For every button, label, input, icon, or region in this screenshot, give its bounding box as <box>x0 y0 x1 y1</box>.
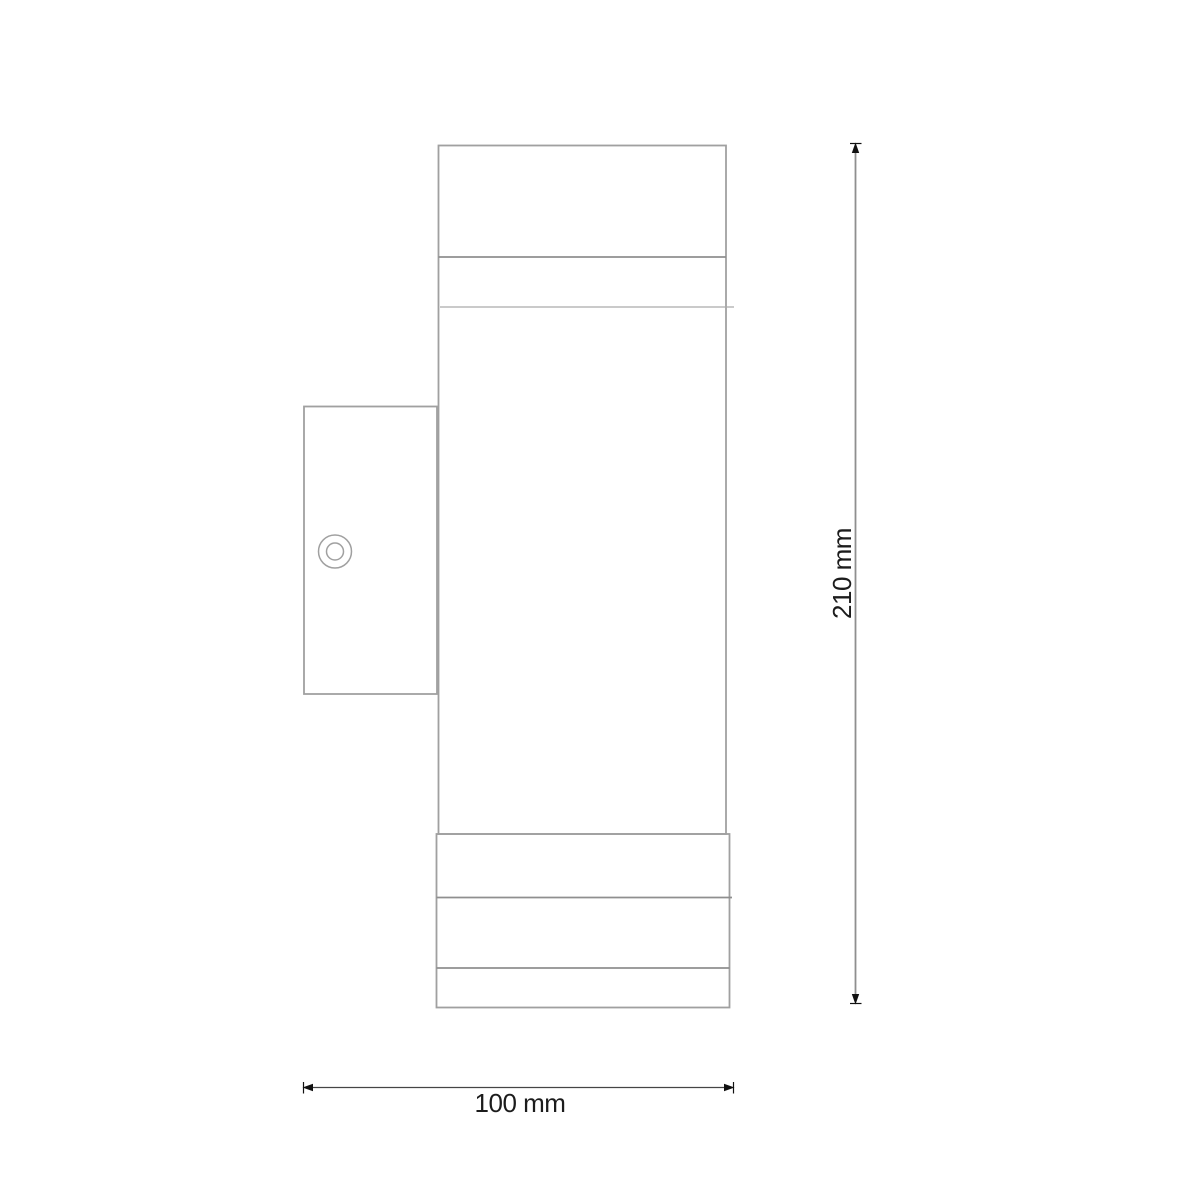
bottom-cap-outline <box>437 834 730 1008</box>
wall-mount-bracket <box>304 407 437 695</box>
height-dimension-label: 210 mm <box>827 528 857 619</box>
lamp-bottom-cap <box>437 834 733 1008</box>
lamp-body-outline <box>439 146 727 835</box>
screw-hole-inner-circle <box>327 543 344 560</box>
lamp-body <box>439 146 735 835</box>
technical-drawing-page: 210 mm 100 mm <box>0 0 1200 1200</box>
width-dimension-label: 100 mm <box>475 1088 566 1118</box>
width-dimension: 100 mm <box>303 1082 735 1118</box>
height-dimension: 210 mm <box>827 143 862 1005</box>
screw-hole-outer-circle <box>319 535 352 568</box>
bracket-outline <box>304 407 437 695</box>
lamp-technical-drawing: 210 mm 100 mm <box>0 0 1200 1200</box>
